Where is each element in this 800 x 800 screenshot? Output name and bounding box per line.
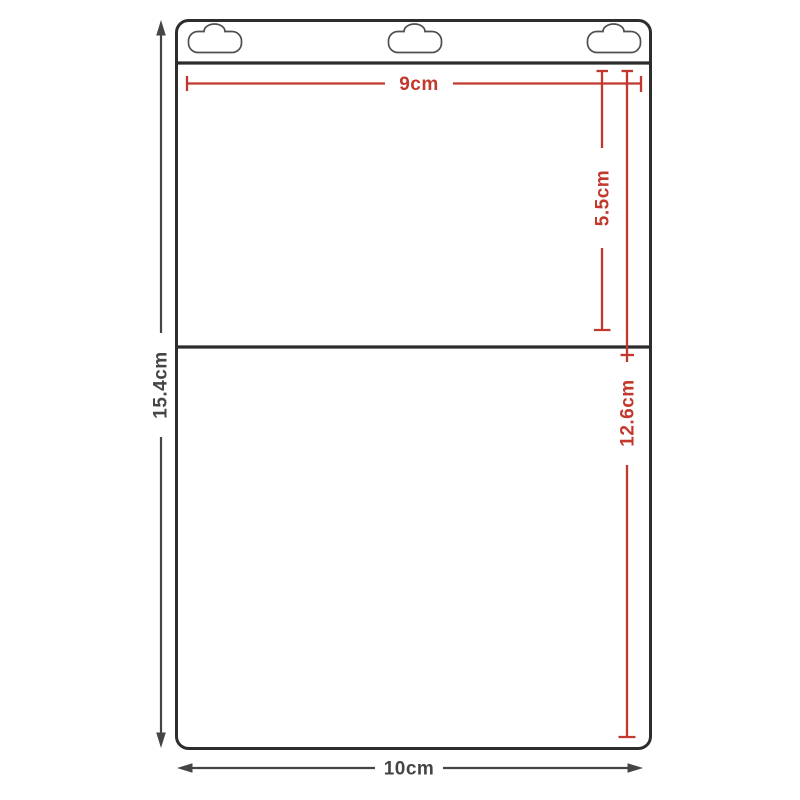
overall-height-dimension: 15.4cm — [151, 20, 172, 748]
euro-slot-hang-tab-center — [389, 24, 442, 52]
arrow-left-icon — [177, 763, 193, 773]
overall-width-label: 10cm — [384, 759, 435, 780]
arrow-up-icon — [156, 20, 166, 36]
lower-pocket-height-label: 12.6cm — [618, 379, 639, 446]
upper-pocket-height-dimension: 5.5cm — [593, 71, 614, 330]
arrow-down-icon — [156, 733, 166, 749]
euro-slot-hang-tab-right — [588, 24, 641, 52]
euro-slot-hang-tab-left — [189, 24, 242, 52]
upper-pocket-height-label: 5.5cm — [593, 170, 614, 226]
top-opening-width-label: 9cm — [399, 74, 439, 95]
pouch-outline — [177, 21, 651, 749]
lower-pocket-height-dimension: 12.6cm — [618, 71, 639, 737]
diagram-canvas: 15.4cm 10cm 9cm 5.5cm — [0, 0, 800, 800]
overall-height-label: 15.4cm — [151, 351, 172, 418]
top-opening-width-dimension: 9cm — [187, 74, 641, 95]
pouch-body — [177, 21, 651, 749]
arrow-right-icon — [628, 763, 644, 773]
overall-width-dimension: 10cm — [177, 759, 643, 780]
pouch-dimension-diagram: 15.4cm 10cm 9cm 5.5cm — [0, 0, 800, 800]
